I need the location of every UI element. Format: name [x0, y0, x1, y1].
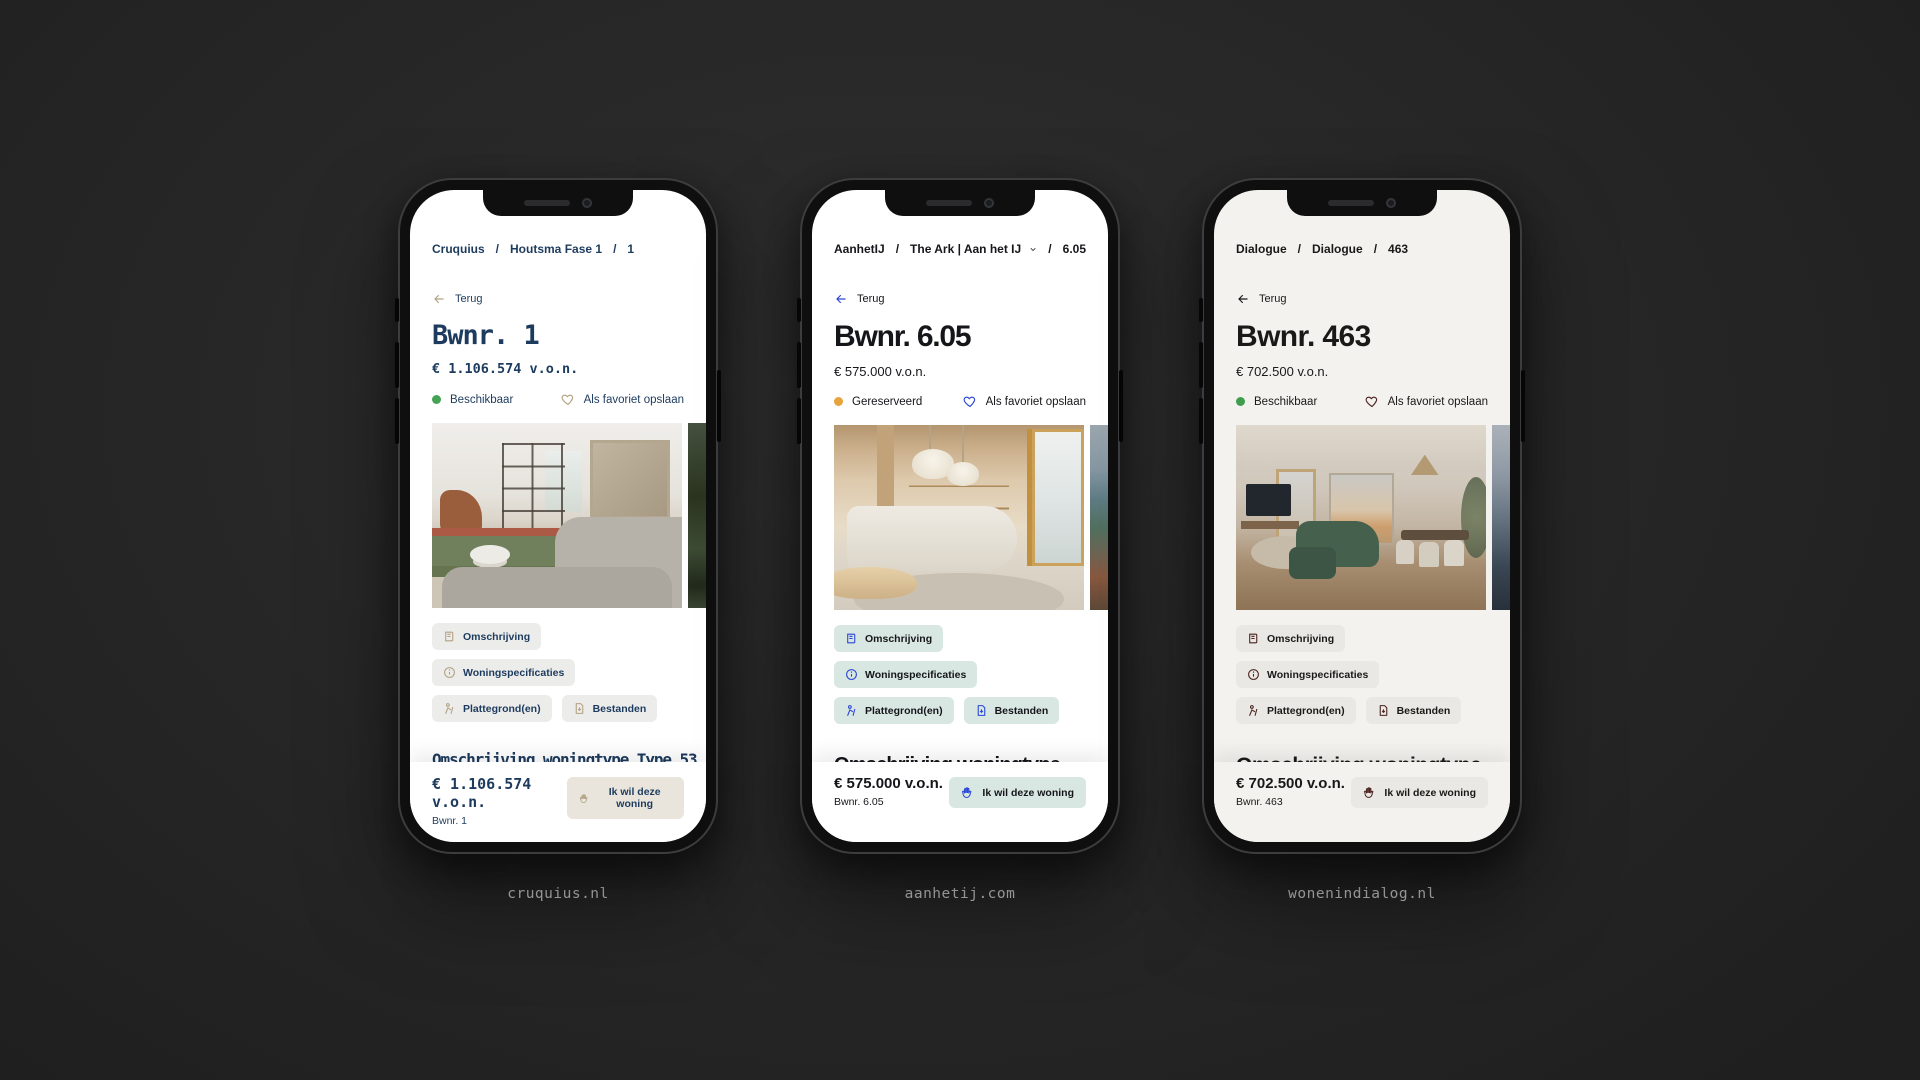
volume-up-button [797, 342, 801, 388]
bottom-price: € 1.106.574 v.o.n. [432, 775, 567, 811]
tab-omschrijving[interactable]: Omschrijving [834, 625, 943, 652]
photo-layer [502, 443, 565, 536]
breadcrumb-item[interactable]: 1 [627, 242, 634, 256]
camera-dot [984, 198, 994, 208]
breadcrumb-separator: / [1048, 242, 1051, 256]
camera-dot [1386, 198, 1396, 208]
photo-layer [947, 462, 980, 486]
power-button [1119, 370, 1123, 442]
back-label: Terug [455, 293, 483, 305]
site-label: cruquius.nl [507, 886, 609, 902]
photo-layer [1241, 521, 1299, 528]
tab-plattegronden[interactable]: Plattegrond(en) [1236, 697, 1356, 724]
cta-button[interactable]: Ik wil deze woning [1351, 777, 1488, 808]
info-icon [845, 668, 858, 681]
tab-woningspecificaties[interactable]: Woningspecificaties [432, 659, 575, 686]
volume-down-button [395, 398, 399, 444]
heart-icon [560, 392, 576, 407]
tab-label: Plattegrond(en) [463, 703, 541, 715]
tab-label: Omschrijving [463, 631, 530, 643]
photo-carousel[interactable] [432, 423, 706, 608]
back-link[interactable]: Terug [1236, 292, 1488, 306]
bottom-unit: Bwnr. 463 [1236, 796, 1345, 808]
unit-title: Bwnr. 463 [1236, 320, 1488, 354]
photo-layer [1027, 429, 1085, 566]
photo-layer [847, 506, 1017, 571]
next-photo-sliver [688, 423, 706, 608]
tab-label: Plattegrond(en) [865, 705, 943, 717]
status-dot [1236, 397, 1245, 406]
photo-layer [1419, 542, 1439, 568]
tab-omschrijving[interactable]: Omschrijving [432, 623, 541, 650]
bottom-price: € 575.000 v.o.n. [834, 775, 943, 792]
property-photo [1236, 425, 1486, 610]
unit-price: € 575.000 v.o.n. [834, 364, 1086, 379]
file-download-icon [1377, 704, 1390, 717]
photo-layer [590, 440, 670, 520]
tab-woningspecificaties[interactable]: Woningspecificaties [834, 661, 977, 688]
phone-screen: AanhetIJ / The Ark | Aan het IJ / 6.05 T… [812, 190, 1108, 842]
status-row: Gereserveerd Als favoriet opslaan [834, 394, 1086, 409]
status-badge: Gereserveerd [834, 396, 922, 408]
tab-plattegronden[interactable]: Plattegrond(en) [834, 697, 954, 724]
next-photo-sliver [1090, 425, 1108, 610]
mute-switch [395, 298, 399, 322]
file-download-icon [573, 702, 586, 715]
tab-label: Omschrijving [1267, 633, 1334, 645]
bottom-price-block: € 702.500 v.o.n. Bwnr. 463 [1236, 775, 1345, 808]
cta-button[interactable]: Ik wil deze woning [949, 777, 1086, 808]
tab-bestanden[interactable]: Bestanden [562, 695, 658, 722]
speaker-slot [926, 200, 972, 206]
clap-icon [961, 786, 974, 799]
bottom-price: € 702.500 v.o.n. [1236, 775, 1345, 792]
photo-layer [442, 567, 672, 608]
volume-down-button [1199, 398, 1203, 444]
stage: Cruquius / Houtsma Fase 1 / 1 Terug Bwnr… [0, 0, 1920, 902]
phone-screen: Dialogue / Dialogue / 463 Terug Bwnr. 46… [1214, 190, 1510, 842]
heart-icon [1364, 394, 1380, 409]
tab-bestanden[interactable]: Bestanden [964, 697, 1060, 724]
camera-dot [582, 198, 592, 208]
phone-column-dialogue: Dialogue / Dialogue / 463 Terug Bwnr. 46… [1202, 178, 1522, 902]
breadcrumb-separator: / [896, 242, 899, 256]
speaker-slot [524, 200, 570, 206]
breadcrumb: Cruquius / Houtsma Fase 1 / 1 [432, 242, 684, 256]
heart-icon [962, 394, 978, 409]
tab-label: Woningspecificaties [865, 669, 966, 681]
book-icon [845, 632, 858, 645]
photo-layer [1461, 477, 1486, 558]
photo-layer [834, 567, 917, 598]
phone-notch [885, 190, 1035, 216]
photo-layer [1246, 484, 1291, 515]
tab-woningspecificaties[interactable]: Woningspecificaties [1236, 661, 1379, 688]
unit-price: € 702.500 v.o.n. [1236, 364, 1488, 379]
cta-label: Ik wil deze woning [1384, 787, 1476, 799]
arrow-left-icon [834, 292, 848, 306]
arrow-left-icon [1236, 292, 1250, 306]
tab-label: Bestanden [593, 703, 647, 715]
breadcrumb-item[interactable]: Cruquius [432, 242, 485, 256]
photo-layer [470, 545, 510, 564]
bottom-bar: € 575.000 v.o.n. Bwnr. 6.05 Ik wil deze … [812, 762, 1108, 842]
mute-switch [1199, 298, 1203, 322]
breadcrumb: AanhetIJ / The Ark | Aan het IJ / 6.05 [834, 242, 1086, 256]
photo-layer [1236, 425, 1486, 471]
breadcrumb-separator: / [1298, 242, 1301, 256]
clap-icon [579, 792, 590, 805]
tab-bar: Omschrijving Woningspecificaties Platteg… [1236, 625, 1488, 724]
status-label: Beschikbaar [450, 394, 513, 406]
status-dot [834, 397, 843, 406]
floorplan-person-icon [1247, 704, 1260, 717]
tab-label: Woningspecificaties [463, 667, 564, 679]
breadcrumb-item[interactable]: 6.05 [1063, 242, 1086, 256]
status-badge: Beschikbaar [1236, 396, 1317, 408]
tab-plattegronden[interactable]: Plattegrond(en) [432, 695, 552, 722]
photo-layer [1444, 540, 1464, 566]
photo-layer [1396, 540, 1414, 564]
cta-label: Ik wil deze woning [982, 787, 1074, 799]
breadcrumb-item[interactable]: 463 [1388, 242, 1408, 256]
floorplan-person-icon [443, 702, 456, 715]
back-link[interactable]: Terug [834, 292, 1086, 306]
unit-title: Bwnr. 6.05 [834, 320, 1086, 354]
status-row: Beschikbaar Als favoriet opslaan [1236, 394, 1488, 409]
breadcrumb-separator: / [496, 242, 499, 256]
breadcrumb-item[interactable]: Dialogue [1236, 242, 1287, 256]
cta-button[interactable]: Ik wil deze woning [567, 777, 684, 819]
tab-bestanden[interactable]: Bestanden [1366, 697, 1462, 724]
file-download-icon [975, 704, 988, 717]
page-content: Dialogue / Dialogue / 463 Terug Bwnr. 46… [1214, 190, 1510, 842]
favorite-button[interactable]: Als favoriet opslaan [1364, 394, 1488, 409]
breadcrumb-item[interactable]: AanhetIJ [834, 242, 885, 256]
volume-up-button [1199, 342, 1203, 388]
property-photo [432, 423, 682, 608]
book-icon [443, 630, 456, 643]
status-badge: Beschikbaar [432, 394, 513, 406]
arrow-left-icon [432, 292, 446, 306]
back-link[interactable]: Terug [432, 292, 684, 306]
photo-layer [962, 425, 964, 466]
breadcrumb-separator: / [613, 242, 616, 256]
bottom-bar: € 1.106.574 v.o.n. Bwnr. 1 Ik wil deze w… [410, 762, 706, 842]
status-row: Beschikbaar Als favoriet opslaan [432, 392, 684, 407]
photo-carousel[interactable] [1236, 425, 1510, 610]
breadcrumb-item[interactable]: Houtsma Fase 1 [510, 242, 602, 256]
breadcrumb: Dialogue / Dialogue / 463 [1236, 242, 1488, 256]
clap-icon [1363, 786, 1376, 799]
tab-label: Omschrijving [865, 633, 932, 645]
bottom-price-block: € 1.106.574 v.o.n. Bwnr. 1 [432, 775, 567, 827]
page-content: Cruquius / Houtsma Fase 1 / 1 Terug Bwnr… [410, 190, 706, 842]
tab-label: Bestanden [995, 705, 1049, 717]
next-photo-sliver [1492, 425, 1510, 610]
favorite-label: Als favoriet opslaan [986, 396, 1086, 408]
favorite-button[interactable]: Als favoriet opslaan [560, 392, 684, 407]
back-label: Terug [857, 293, 885, 305]
unit-title: Bwnr. 1 [432, 320, 684, 351]
back-label: Terug [1259, 293, 1287, 305]
tab-label: Bestanden [1397, 705, 1451, 717]
phone-mockup: Cruquius / Houtsma Fase 1 / 1 Terug Bwnr… [398, 178, 718, 854]
status-label: Beschikbaar [1254, 396, 1317, 408]
breadcrumb-item[interactable]: Dialogue [1312, 242, 1363, 256]
breadcrumb-item[interactable]: The Ark | Aan het IJ [910, 242, 1021, 256]
phone-notch [1287, 190, 1437, 216]
tab-bar: Omschrijving Woningspecificaties Platteg… [834, 625, 1086, 724]
status-label: Gereserveerd [852, 396, 922, 408]
info-icon [1247, 668, 1260, 681]
phone-notch [483, 190, 633, 216]
tab-bar: Omschrijving Woningspecificaties Platteg… [432, 623, 684, 722]
unit-price: € 1.106.574 v.o.n. [432, 361, 684, 377]
phone-mockup: Dialogue / Dialogue / 463 Terug Bwnr. 46… [1202, 178, 1522, 854]
phone-mockup: AanhetIJ / The Ark | Aan het IJ / 6.05 T… [800, 178, 1120, 854]
property-photo [834, 425, 1084, 610]
phone-column-aanhetij: AanhetIJ / The Ark | Aan het IJ / 6.05 T… [800, 178, 1120, 902]
photo-carousel[interactable] [834, 425, 1108, 610]
bottom-unit: Bwnr. 1 [432, 815, 567, 827]
page-content: AanhetIJ / The Ark | Aan het IJ / 6.05 T… [812, 190, 1108, 842]
photo-layer [1289, 547, 1337, 578]
tab-omschrijving[interactable]: Omschrijving [1236, 625, 1345, 652]
phone-column-cruquius: Cruquius / Houtsma Fase 1 / 1 Terug Bwnr… [398, 178, 718, 902]
favorite-label: Als favoriet opslaan [1388, 396, 1488, 408]
favorite-label: Als favoriet opslaan [584, 394, 684, 406]
mute-switch [797, 298, 801, 322]
volume-down-button [797, 398, 801, 444]
bottom-unit: Bwnr. 6.05 [834, 796, 943, 808]
favorite-button[interactable]: Als favoriet opslaan [962, 394, 1086, 409]
floorplan-person-icon [845, 704, 858, 717]
speaker-slot [1328, 200, 1374, 206]
cta-label: Ik wil deze woning [597, 786, 672, 810]
tab-label: Plattegrond(en) [1267, 705, 1345, 717]
site-label: wonenindialog.nl [1288, 886, 1436, 902]
volume-up-button [395, 342, 399, 388]
book-icon [1247, 632, 1260, 645]
power-button [717, 370, 721, 442]
bottom-price-block: € 575.000 v.o.n. Bwnr. 6.05 [834, 775, 943, 808]
chevron-down-icon[interactable] [1029, 244, 1037, 255]
phone-screen: Cruquius / Houtsma Fase 1 / 1 Terug Bwnr… [410, 190, 706, 842]
bottom-bar: € 702.500 v.o.n. Bwnr. 463 Ik wil deze w… [1214, 762, 1510, 842]
info-icon [443, 666, 456, 679]
tab-label: Woningspecificaties [1267, 669, 1368, 681]
breadcrumb-separator: / [1374, 242, 1377, 256]
photo-layer [1401, 530, 1469, 539]
site-label: aanhetij.com [905, 886, 1016, 902]
power-button [1521, 370, 1525, 442]
status-dot [432, 395, 441, 404]
